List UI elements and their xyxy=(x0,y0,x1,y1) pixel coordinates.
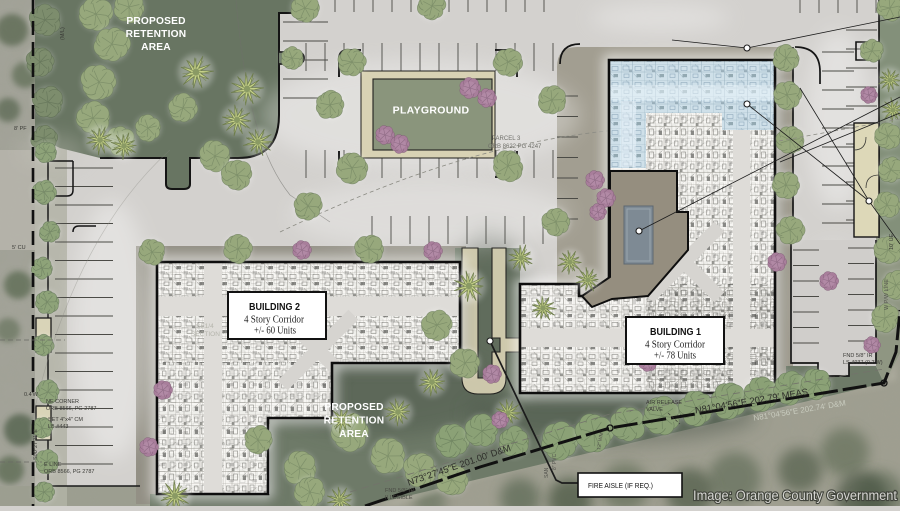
svg-text:ORB 8622 PG 4247: ORB 8622 PG 4247 xyxy=(488,144,542,150)
svg-text:SECTION: SECTION xyxy=(191,331,220,338)
svg-text:SAN: SAN xyxy=(544,467,550,478)
svg-text:SE1/4: SE1/4 xyxy=(196,323,214,330)
svg-text:NE CORNER: NE CORNER xyxy=(46,399,79,405)
svg-text:5′ CU: 5′ CU xyxy=(12,245,26,251)
svg-text:LB #443: LB #443 xyxy=(48,424,69,430)
svg-text:AREA: AREA xyxy=(339,429,369,440)
svg-text:(M/L): (M/L) xyxy=(60,27,66,40)
svg-text:RETENTION: RETENTION xyxy=(324,416,385,427)
svg-text:BUILDING 2: BUILDING 2 xyxy=(249,301,300,313)
svg-text:8″ PVC: 8″ PVC xyxy=(552,453,558,470)
svg-text:PARCEL 3: PARCEL 3 xyxy=(492,136,521,142)
svg-text:4 Story Corridor: 4 Story Corridor xyxy=(645,340,705,351)
svg-text:FND 5/8″ IR: FND 5/8″ IR xyxy=(385,488,414,494)
svg-text:10′ UE: 10′ UE xyxy=(889,233,895,250)
svg-text:PROPOSED: PROPOSED xyxy=(324,402,383,413)
svg-text:4 Story Corridor: 4 Story Corridor xyxy=(244,315,304,326)
svg-text:Image: Orange County Governmen: Image: Orange County Government xyxy=(693,488,897,503)
svg-text:+/- 60 Units: +/- 60 Units xyxy=(254,326,296,337)
svg-text:RETENTION: RETENTION xyxy=(126,29,187,40)
svg-text:ORB 8566, PG 2787: ORB 8566, PG 2787 xyxy=(46,406,96,412)
svg-text:LS 4937 (0.2′W): LS 4937 (0.2′W) xyxy=(843,360,883,366)
svg-text:0.4′W: 0.4′W xyxy=(24,392,39,398)
svg-text:AREA: AREA xyxy=(141,42,171,53)
svg-text:VALVE: VALVE xyxy=(646,407,663,413)
svg-text:FIRE AISLE (IF REQ.): FIRE AISLE (IF REQ.) xyxy=(588,481,653,490)
svg-text:PROPOSED: PROPOSED xyxy=(126,16,185,27)
svg-text:SET 4″x4″ CM: SET 4″x4″ CM xyxy=(48,417,83,423)
svg-text:E LINE: E LINE xyxy=(44,462,62,468)
svg-text:PLAYGROUND: PLAYGROUND xyxy=(393,105,470,117)
svg-text:8′ PF: 8′ PF xyxy=(14,126,27,132)
svg-text:ORB 8566, PG 2787: ORB 8566, PG 2787 xyxy=(44,469,94,475)
svg-text:W P/W LINE: W P/W LINE xyxy=(884,279,890,310)
svg-text:AIR RELEASE: AIR RELEASE xyxy=(646,400,682,406)
svg-text:BUILDING 1: BUILDING 1 xyxy=(650,326,701,338)
svg-text:S00°27′21″E: S00°27′21″E xyxy=(33,429,39,460)
svg-text:+/- 78 Units: +/- 78 Units xyxy=(654,351,696,362)
svg-text:FND 5/8″ IR: FND 5/8″ IR xyxy=(843,353,872,359)
svg-text:ILLEGIBLE: ILLEGIBLE xyxy=(385,495,413,501)
